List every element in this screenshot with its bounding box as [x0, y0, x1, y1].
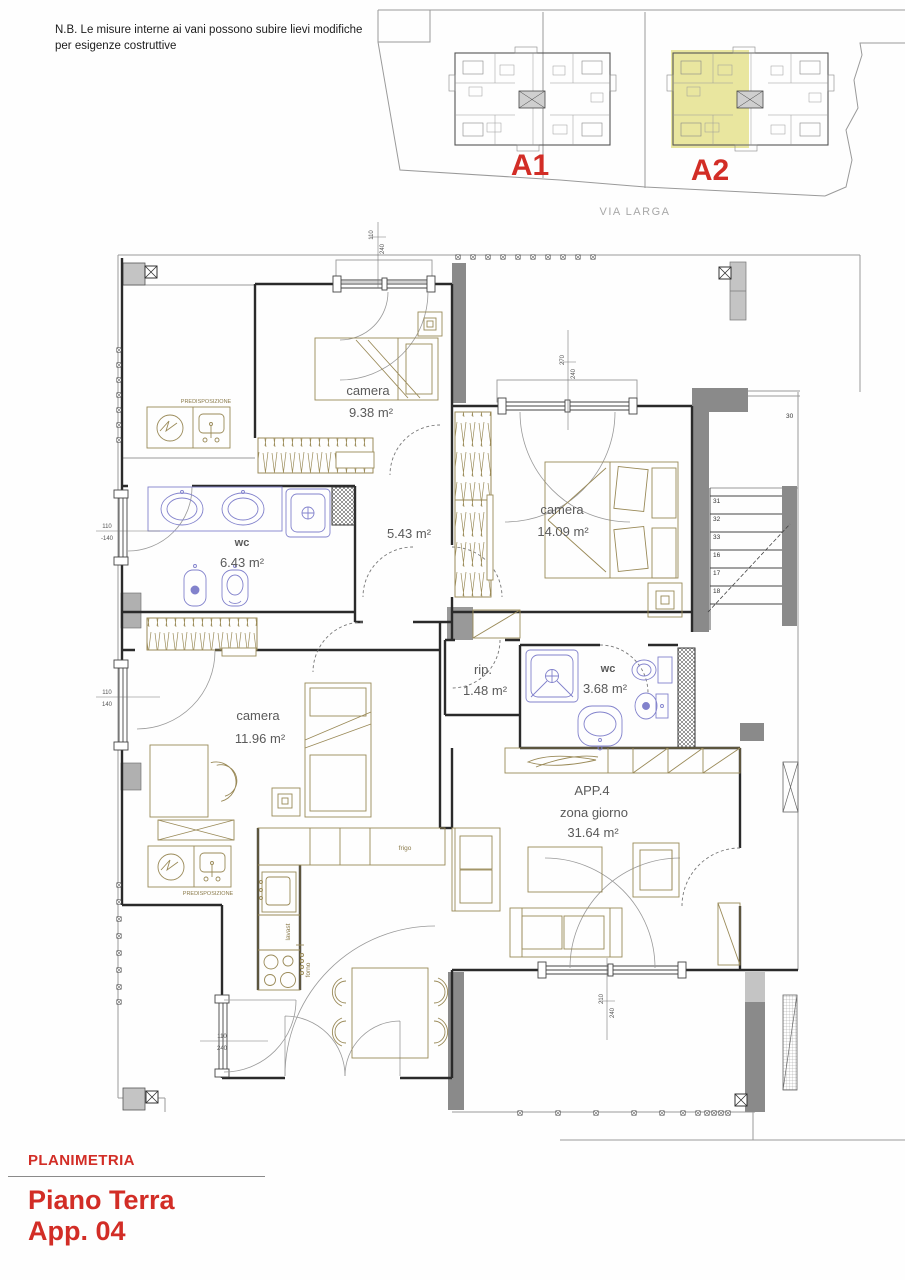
svg-text:110: 110 — [102, 690, 112, 696]
floor-plan-sheet: N.B. Le misure interne ai vani possono s… — [0, 0, 905, 1280]
tv-cabinet — [505, 748, 740, 773]
bed-single-left — [305, 683, 371, 817]
label-camera-left-name: camera — [236, 708, 280, 723]
bed-double — [545, 462, 678, 578]
label-dishwasher: lavast — [285, 923, 292, 940]
stair-step-16: 16 — [713, 552, 721, 559]
stair-step-17: 17 — [713, 570, 721, 577]
svg-text:270: 270 — [560, 354, 566, 365]
bath-small-fixtures — [526, 650, 672, 750]
svg-text:110: 110 — [369, 230, 375, 240]
svg-text:140: 140 — [102, 702, 113, 708]
kitchen-counter — [258, 828, 445, 990]
stair-step-18: 18 — [713, 588, 721, 595]
site-plan: A1 A2 VIA LARGA — [378, 10, 905, 218]
sofa-left — [452, 828, 500, 911]
sink-small — [578, 706, 622, 750]
title-divider — [8, 1176, 265, 1177]
stair-step-32: 32 — [713, 516, 721, 523]
marker-col-lower-left — [117, 883, 121, 1004]
wardrobe-camera-right — [455, 412, 491, 597]
svg-text:-140: -140 — [101, 536, 114, 542]
marker-col-upper-left — [117, 348, 121, 442]
building-a1-label: A1 — [511, 149, 549, 182]
stairs: 31 32 33 16 17 18 30 — [708, 413, 794, 630]
section-title: PLANIMETRIA — [28, 1152, 265, 1169]
label-apartment-id: APP.4 — [574, 783, 609, 798]
apartment-title: App. 04 — [28, 1216, 265, 1247]
label-bath-small-name: wc — [600, 663, 616, 675]
bidet-small — [635, 693, 668, 719]
dim-camera-left-window: 110 140 — [96, 690, 160, 708]
side-cabinet — [718, 903, 740, 965]
site-boundary — [378, 10, 905, 196]
svg-text:240: 240 — [217, 1046, 228, 1052]
label-oven: forno — [305, 962, 312, 977]
laundry-bottom — [148, 846, 231, 887]
window-living-bottom — [538, 962, 686, 978]
window-camera-top — [333, 260, 435, 292]
label-camera-right-area: 14.09 m² — [537, 524, 589, 539]
label-predisposizione-bottom: PREDISPOSIZIONE — [183, 891, 234, 897]
svg-text:240: 240 — [380, 243, 386, 254]
svg-text:110: 110 — [217, 1034, 227, 1040]
stair-step-31: 31 — [713, 498, 721, 505]
svg-text:240: 240 — [610, 1007, 616, 1018]
label-predisposizione-top: PREDISPOSIZIONE — [181, 399, 232, 405]
stair-landing-number: 30 — [786, 413, 794, 420]
window-bath-left — [114, 490, 128, 565]
dining-table — [332, 968, 447, 1058]
label-bath-main-area: 6.43 m² — [220, 555, 265, 570]
coffee-table — [528, 847, 602, 892]
svg-text:110: 110 — [102, 524, 112, 530]
storage-cabinet — [473, 610, 520, 638]
building-a1-plan — [449, 47, 616, 151]
dim-kitchen-window: 110 240 — [200, 1034, 268, 1052]
wardrobe-hall — [147, 618, 257, 650]
label-camera-top-name: camera — [346, 383, 390, 398]
nightstand-left — [272, 788, 300, 816]
marker-row-bottom — [518, 1111, 730, 1115]
label-bath-main-name: wc — [234, 537, 250, 549]
window-camera-right — [497, 380, 637, 414]
svg-text:240: 240 — [571, 368, 577, 379]
dim-bath-window: 110 -140 — [96, 524, 160, 542]
label-fridge: frigo — [399, 845, 412, 852]
label-camera-right-name: camera — [540, 502, 584, 517]
floor-plan: 31 32 33 16 17 18 30 — [96, 222, 905, 1140]
label-living-name: zona giorno — [560, 805, 628, 820]
sofa-bottom — [510, 908, 622, 957]
laundry-top — [147, 407, 230, 448]
room-labels: camera 9.38 m² camera 14.09 m² wc 6.43 m… — [181, 383, 628, 977]
label-bath-small-area: 3.68 m² — [583, 681, 628, 696]
label-camera-left-area: 11.96 m² — [235, 731, 286, 746]
label-camera-top-area: 9.38 m² — [349, 405, 394, 420]
bidet-main — [184, 565, 206, 607]
trunk — [158, 820, 234, 840]
street-label: VIA LARGA — [600, 206, 671, 218]
furniture — [147, 312, 740, 1058]
toilet-small — [632, 657, 672, 683]
label-living-area: 31.64 m² — [567, 825, 619, 840]
stair-step-33: 33 — [713, 534, 721, 541]
label-storage-area: 1.48 m² — [463, 683, 508, 698]
svg-text:210: 210 — [599, 993, 605, 1004]
title-block: PLANIMETRIA Piano Terra App. 04 — [28, 1152, 265, 1247]
desk — [150, 745, 241, 817]
label-storage-name: rip. — [474, 662, 492, 677]
building-a2-label: A2 — [691, 154, 729, 187]
label-hallway-area: 5.43 m² — [387, 526, 432, 541]
window-camera-left — [114, 660, 128, 750]
floor-title: Piano Terra — [28, 1185, 265, 1216]
stove — [264, 945, 304, 988]
plan-drawing: A1 A2 VIA LARGA — [0, 0, 905, 1280]
armchair — [633, 843, 679, 897]
toilet-main — [222, 565, 248, 607]
